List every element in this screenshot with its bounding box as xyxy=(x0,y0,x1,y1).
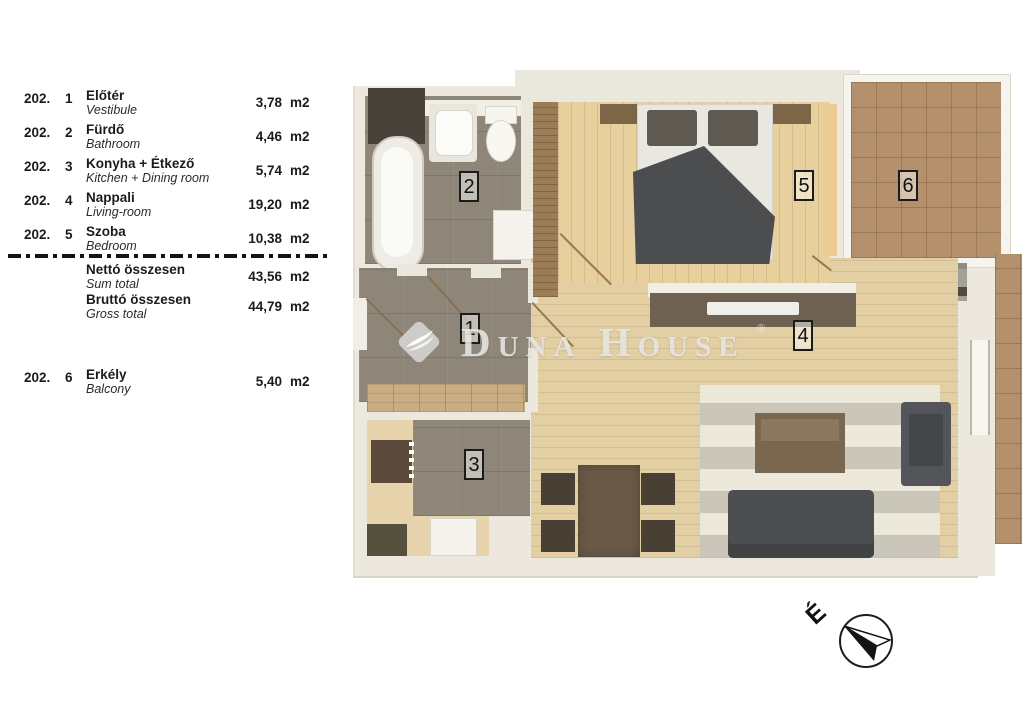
room-area: 19,20 xyxy=(214,197,282,212)
soundbar xyxy=(707,302,799,315)
room-index: 6 xyxy=(65,370,81,385)
watermark-duna-house: Duna House ® xyxy=(393,316,770,368)
pillow xyxy=(647,110,697,146)
wall-stub xyxy=(397,264,427,276)
legend-separator xyxy=(8,254,330,258)
wall-stub xyxy=(471,268,501,278)
room-area: 10,38 xyxy=(214,231,282,246)
room-number-4: 4 xyxy=(793,320,813,351)
bedroom-wardrobe xyxy=(533,102,558,297)
coffee-table-top xyxy=(761,419,839,441)
room-index: 2 xyxy=(65,125,81,140)
room-number-3: 3 xyxy=(464,449,484,480)
washing-machine xyxy=(493,210,535,260)
total-area: 43,56 xyxy=(214,269,282,284)
floorplan-page: 202. 1 Előtér Vestibule 3,78 m2 202. 2 F… xyxy=(0,0,1024,702)
washbasin xyxy=(435,110,473,156)
cabinet-handles xyxy=(409,442,414,482)
duna-house-logo-icon xyxy=(393,316,445,368)
room-code: 202. xyxy=(24,159,62,174)
watermark-text: Duna House xyxy=(461,318,745,366)
legend-row-kitchen: 202. 3 Konyha + Étkező Kitchen + Dining … xyxy=(18,156,336,188)
room-index: 5 xyxy=(65,227,81,242)
legend-row-bedroom: 202. 5 Szoba Bedroom 10,38 m2 xyxy=(18,224,336,256)
side-terrace-strip xyxy=(995,254,1022,544)
headboard-shelf xyxy=(600,104,642,124)
stove xyxy=(371,440,412,483)
balcony-floor xyxy=(851,82,1001,258)
room-code: 202. xyxy=(24,193,62,208)
headboard-shelf xyxy=(769,104,811,124)
area-unit: m2 xyxy=(290,95,322,110)
legend-panel: 202. 1 Előtér Vestibule 3,78 m2 202. 2 F… xyxy=(18,84,336,420)
dining-chair xyxy=(641,473,675,505)
room-code: 202. xyxy=(24,125,62,140)
built-in-closet xyxy=(367,384,525,412)
legend-row-balcony: 202. 6 Erkély Balcony 5,40 m2 xyxy=(18,367,336,399)
total-area: 44,79 xyxy=(214,299,282,314)
room-area: 4,46 xyxy=(214,129,282,144)
room-code: 202. xyxy=(24,370,62,385)
fridge xyxy=(367,524,407,556)
living-room-window xyxy=(970,340,990,435)
wall-stub xyxy=(359,412,531,420)
legend-row-bathroom: 202. 2 Fürdő Bathroom 4,46 m2 xyxy=(18,122,336,154)
sofa xyxy=(728,490,874,558)
toilet-bowl xyxy=(486,120,516,162)
legend-row-gross-total: Bruttó összesen Gross total 44,79 m2 xyxy=(18,292,336,324)
legend-row-net-total: Nettó összesen Sum total 43,56 m2 xyxy=(18,262,336,294)
room-number-2: 2 xyxy=(459,171,479,202)
area-unit: m2 xyxy=(290,197,322,212)
area-unit: m2 xyxy=(290,299,322,314)
registered-mark: ® xyxy=(757,321,766,336)
dining-chair xyxy=(541,520,575,552)
bedroom-side-wardrobe xyxy=(823,104,837,256)
legend-row-living: 202. 4 Nappali Living-room 19,20 m2 xyxy=(18,190,336,222)
dining-chair xyxy=(641,520,675,552)
dining-chair xyxy=(541,473,575,505)
room-index: 1 xyxy=(65,91,81,106)
area-unit: m2 xyxy=(290,231,322,246)
room-code: 202. xyxy=(24,227,62,242)
room-index: 4 xyxy=(65,193,81,208)
room-number-6: 6 xyxy=(898,170,918,201)
pillow xyxy=(708,110,758,146)
kitchen-sink xyxy=(430,518,477,556)
area-unit: m2 xyxy=(290,163,322,178)
room-index: 3 xyxy=(65,159,81,174)
room-area: 5,40 xyxy=(214,374,282,389)
compass-north-indicator: É xyxy=(800,596,916,696)
dining-table xyxy=(578,465,640,557)
entry-door-opening xyxy=(353,298,367,350)
room-number-5: 5 xyxy=(794,170,814,201)
bathtub-basin xyxy=(381,147,413,257)
area-unit: m2 xyxy=(290,269,322,284)
floor-plan: 1 2 3 4 5 6 Duna House ® xyxy=(345,58,1024,592)
room-area: 5,74 xyxy=(214,163,282,178)
area-unit: m2 xyxy=(290,374,322,389)
room-area: 3,78 xyxy=(214,95,282,110)
area-unit: m2 xyxy=(290,129,322,144)
room-code: 202. xyxy=(24,91,62,106)
legend-row-vestibule: 202. 1 Előtér Vestibule 3,78 m2 xyxy=(18,88,336,120)
bedroom-top-wall xyxy=(515,70,860,106)
armchair-seat xyxy=(909,414,943,466)
